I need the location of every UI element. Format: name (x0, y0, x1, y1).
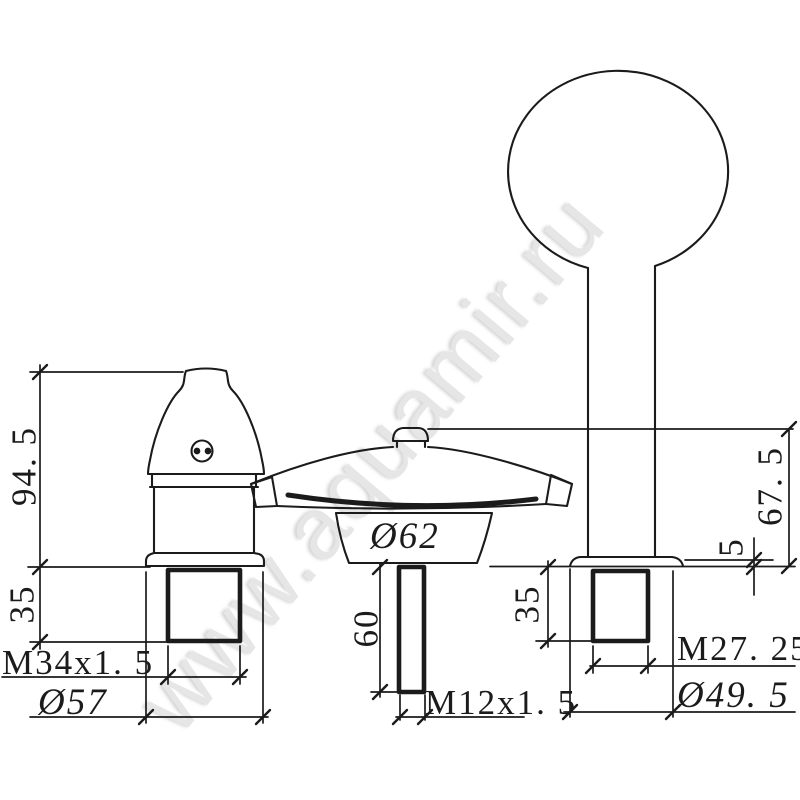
indicator-dot-right (206, 449, 211, 454)
dim-spout-shank-length: 60 (349, 609, 384, 648)
dim-left-thread-spec: M34x1. 5 (2, 645, 154, 680)
dim-left-handle-height: 94. 5 (7, 426, 42, 506)
dim-right-thread-length: 35 (510, 585, 545, 624)
indicator-dot-left (195, 449, 200, 454)
faucet-technical-drawing: www.aquamir.ru (0, 0, 800, 800)
ball-knob-stem (588, 266, 655, 557)
right-handle-thread (593, 571, 648, 641)
spout-waterfall-slot (288, 495, 536, 506)
spout-view (251, 428, 572, 692)
left-handle-collar (150, 474, 258, 487)
left-handle-skirt (146, 553, 264, 566)
spout-dome-top (251, 447, 572, 484)
dim-right-base-diameter: Ø49. 5 (677, 677, 790, 714)
left-handle-body (154, 487, 254, 553)
left-handle-outline (148, 369, 264, 475)
dim-left-thread-length: 35 (5, 585, 40, 624)
dim-right-flange-thickness: 5 (714, 537, 749, 557)
dim-spout-body-diameter: Ø62 (370, 518, 440, 555)
dim-left-base-diameter: Ø57 (38, 684, 108, 721)
left-handle-thread (168, 570, 240, 641)
ball-knob (508, 71, 728, 268)
spout-cap (393, 428, 428, 447)
dim-right-handle-height: 67. 5 (753, 446, 788, 526)
right-handle-flange (570, 557, 683, 566)
left-handle-view (146, 369, 264, 642)
spout-thread-shank (399, 567, 424, 692)
dim-spout-shank-thread: M12x1. 5 (425, 685, 577, 720)
right-handle-view (508, 71, 728, 641)
dim-right-thread-spec: M27. 25 (677, 631, 800, 666)
